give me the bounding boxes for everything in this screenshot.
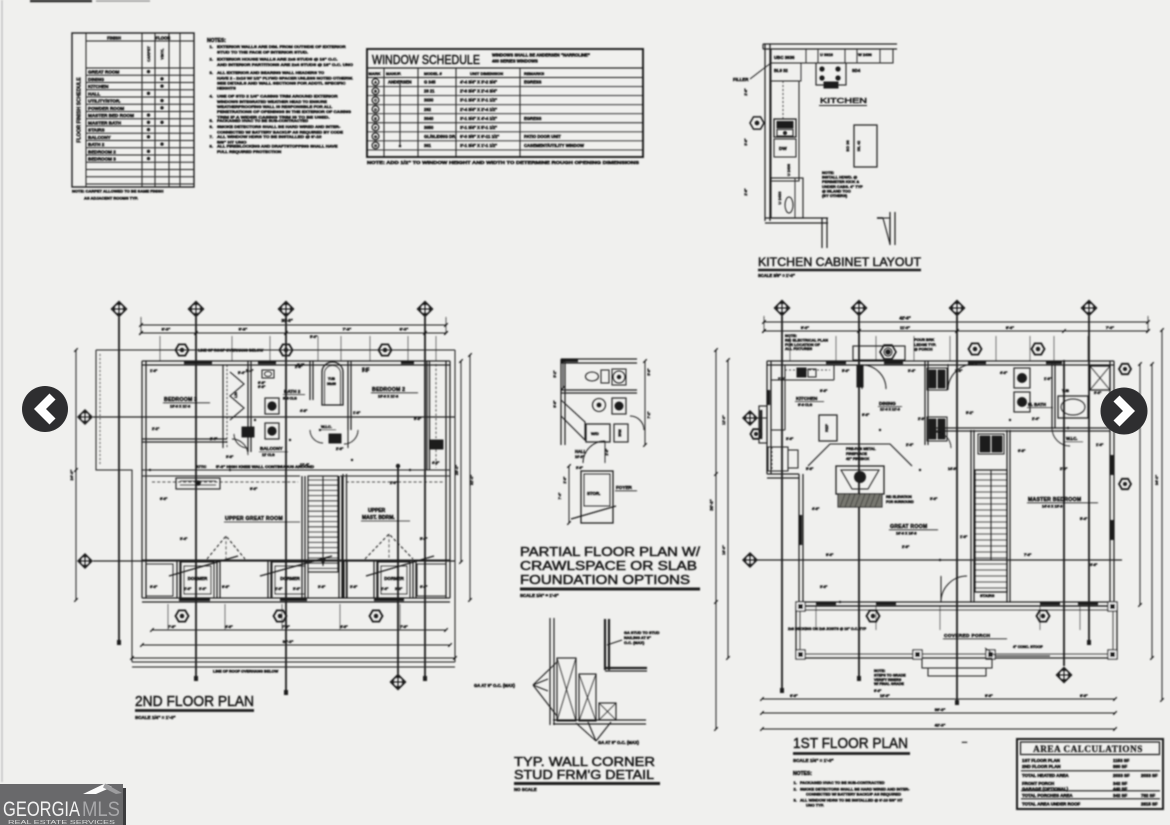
svg-text:8'-0": 8'-0" (162, 327, 171, 332)
svg-text:4'-8": 4'-8" (300, 409, 308, 413)
svg-text:3'-6": 3'-6" (350, 585, 358, 589)
svg-text:4'-0": 4'-0" (225, 625, 233, 629)
svg-text:9'-0 CLG: 9'-0 CLG (798, 403, 813, 407)
svg-text:6'-8": 6'-8" (258, 385, 266, 389)
svg-text:NOTES:: NOTES: (207, 38, 226, 44)
svg-text:2'-0": 2'-0" (381, 587, 389, 591)
svg-text:2'-0": 2'-0" (275, 587, 283, 591)
svg-text:TOTAL AREA UNDER ROOF: TOTAL AREA UNDER ROOF (1022, 802, 1081, 807)
svg-text:UPPER: UPPER (368, 508, 386, 514)
svg-text:5'-2": 5'-2" (553, 370, 557, 378)
svg-text:M. BATH: M. BATH (1028, 402, 1046, 407)
svg-text:U 3618: U 3618 (820, 52, 834, 57)
svg-text:GA AT 8" O.C. (MAX): GA AT 8" O.C. (MAX) (598, 740, 640, 745)
svg-text:342 SF: 342 SF (1113, 781, 1127, 786)
svg-text:3.: 3. (794, 798, 797, 803)
svg-text:7'-8": 7'-8" (343, 327, 352, 332)
svg-text:2ND FLOOR PLAN: 2ND FLOOR PLAN (1022, 764, 1061, 769)
svg-text:1'-8": 1'-8" (960, 535, 968, 539)
svg-text:2x6 DECKING ON 2x8 JOISTS @ 16: 2x6 DECKING ON 2x8 JOISTS @ 16" O.C. TYP (788, 627, 867, 631)
svg-text:1'-6": 1'-6" (150, 369, 158, 373)
svg-text:9'-8": 9'-8" (239, 327, 248, 332)
svg-text:1ST FLOOR PLAN: 1ST FLOOR PLAN (1022, 758, 1060, 763)
svg-text:TUB: TUB (1062, 389, 1070, 393)
svg-text:COVERED PORCH: COVERED PORCH (944, 633, 991, 639)
svg-text:NOTE: ADD 1/2" TO WINDOW HEIGH: NOTE: ADD 1/2" TO WINDOW HEIGHT AND WIDT… (367, 160, 639, 165)
svg-text:11'-0 X 12'-0: 11'-0 X 12'-0 (880, 408, 900, 412)
svg-text:W/D: W/D (591, 431, 599, 436)
svg-text:MASTER BEDROOM: MASTER BEDROOM (1028, 497, 1081, 503)
svg-text:2'-6 3/4" X 2'-4 3/4": 2'-6 3/4" X 2'-4 3/4" (460, 89, 497, 94)
svg-text:STEPS TO GRADE: STEPS TO GRADE (874, 673, 906, 677)
svg-text:30'-0": 30'-0" (283, 639, 294, 644)
svg-text:7'-2": 7'-2" (647, 411, 651, 419)
svg-text:1ST FLOOR PLAN: 1ST FLOOR PLAN (793, 736, 908, 752)
svg-text:9'-0": 9'-0" (826, 553, 834, 557)
svg-text:30'-0": 30'-0" (281, 318, 292, 323)
svg-text:42'-0": 42'-0" (935, 723, 946, 728)
svg-text:782 SF: 782 SF (1141, 793, 1155, 798)
svg-text:42'-0": 42'-0" (899, 316, 910, 321)
svg-text:FLOOR FINISH SCHEDULE: FLOOR FINISH SCHEDULE (77, 77, 83, 143)
svg-text:CASEMENT/UTILITY WINDOW: CASEMENT/UTILITY WINDOW (524, 143, 584, 148)
svg-text:1'-8": 1'-8" (353, 411, 361, 415)
svg-text:6.: 6. (210, 124, 213, 129)
svg-text:FLOOR: FLOOR (156, 36, 171, 41)
svg-text:FOYER: FOYER (616, 485, 633, 490)
svg-text:U 2430: U 2430 (777, 191, 782, 205)
svg-text:6'-0": 6'-0" (400, 327, 409, 332)
svg-text:3'-0": 3'-0" (293, 587, 301, 591)
svg-text:AND INTERIOR PARTITIONS ARE 2x: AND INTERIOR PARTITIONS ARE 2x4 STUDS @ … (217, 62, 353, 67)
svg-text:6'-0": 6'-0" (862, 413, 870, 417)
svg-text:EGRESS: EGRESS (524, 116, 542, 121)
svg-text:6'-6": 6'-6" (553, 400, 557, 408)
svg-text:H: H (374, 144, 377, 148)
svg-text:7'-0": 7'-0" (168, 625, 176, 629)
svg-text:FIREPLACE: FIREPLACE (846, 452, 867, 456)
svg-text:NOTE:: NOTE: (785, 334, 797, 338)
svg-text:1.: 1. (210, 44, 213, 49)
svg-text:MARK: MARK (369, 71, 381, 76)
svg-text:AREA CALCULATIONS: AREA CALCULATIONS (1033, 744, 1143, 754)
svg-text:301: 301 (424, 143, 432, 148)
svg-text:SCALE 3/8" = 1'-0": SCALE 3/8" = 1'-0" (758, 273, 795, 278)
svg-text:PACKAGED HVAC TO BE SUB-CONTRA: PACKAGED HVAC TO BE SUB-CONTRACTED (217, 118, 308, 123)
svg-text:12'-4": 12'-4" (300, 463, 310, 467)
svg-text:16'-0": 16'-0" (722, 545, 726, 555)
svg-text:3'-1 3/4" X 4'-4 1/2": 3'-1 3/4" X 4'-4 1/2" (460, 116, 497, 121)
svg-text:REMARKS: REMARKS (524, 71, 545, 76)
svg-text:38'-0": 38'-0" (935, 707, 946, 712)
svg-text:2'-8": 2'-8" (918, 417, 926, 421)
svg-text:BL9 32: BL9 32 (774, 68, 788, 73)
svg-text:1153 SF: 1153 SF (1113, 758, 1130, 763)
svg-text:2033 SF: 2033 SF (1113, 773, 1130, 778)
svg-text:NO SCALE: NO SCALE (514, 787, 537, 792)
svg-text:3'-0": 3'-0" (1094, 391, 1102, 395)
svg-text:282: 282 (424, 107, 432, 112)
svg-text:2815 SF: 2815 SF (1141, 802, 1158, 807)
svg-text:PRE-FAB METAL: PRE-FAB METAL (846, 447, 876, 451)
svg-text:LEDGE TYP.: LEDGE TYP. (914, 343, 936, 347)
svg-text:2'-0": 2'-0" (390, 481, 398, 485)
svg-text:4'-4 3/4" X 3'-2 3/4": 4'-4 3/4" X 3'-2 3/4" (460, 80, 497, 85)
svg-text:6'-0": 6'-0" (160, 497, 168, 501)
svg-text:6'-0": 6'-0" (150, 585, 158, 589)
svg-text:DINING: DINING (879, 401, 896, 407)
svg-text:3'-0": 3'-0" (199, 587, 207, 591)
svg-text:3030: 3030 (424, 98, 434, 103)
svg-text:C: C (374, 99, 377, 103)
svg-text:DORMER: DORMER (188, 576, 208, 581)
svg-text:4'-0": 4'-0" (812, 507, 820, 511)
svg-text:BALCONY: BALCONY (88, 135, 111, 140)
svg-text:TOTAL PORCHES AREA: TOTAL PORCHES AREA (1022, 793, 1073, 798)
svg-text:MASTER BED ROOM: MASTER BED ROOM (88, 113, 134, 118)
svg-text:BEDROOM 2: BEDROOM 2 (372, 387, 405, 393)
svg-text:GREAT ROOM: GREAT ROOM (88, 70, 119, 75)
svg-text:UBC 3636: UBC 3636 (774, 55, 795, 60)
svg-text:4'-0": 4'-0" (432, 461, 440, 465)
svg-text:BATH 2: BATH 2 (88, 142, 105, 147)
svg-text:BATH 2: BATH 2 (284, 389, 301, 394)
svg-text:2'-4 3/4" X 2'-4 1/2": 2'-4 3/4" X 2'-4 1/2" (460, 107, 497, 112)
svg-text:HEIGHTS: HEIGHTS (217, 86, 236, 91)
svg-text:5'-2": 5'-2" (966, 411, 974, 415)
svg-text:2'-2": 2'-2" (152, 427, 160, 431)
svg-text:VERIFY RISERS: VERIFY RISERS (874, 678, 902, 682)
svg-text:880 SF: 880 SF (1113, 764, 1127, 769)
svg-text:2'-6": 2'-6" (210, 437, 218, 441)
svg-text:RE: ELEVATION: RE: ELEVATION (886, 495, 912, 499)
svg-text:12'-0": 12'-0" (722, 415, 726, 425)
svg-text:11'-0": 11'-0" (900, 326, 910, 330)
svg-text:6'-8": 6'-8" (258, 381, 266, 385)
svg-text:BRM: BRM (618, 429, 622, 437)
svg-text:6'-8": 6'-8" (1018, 449, 1026, 453)
svg-text:STUD FRM'G DETAIL: STUD FRM'G DETAIL (514, 767, 654, 782)
svg-text:3'-4": 3'-4" (908, 369, 916, 373)
svg-text:REF: REF (825, 424, 829, 432)
svg-text:28'-0": 28'-0" (455, 465, 459, 476)
svg-text:KITCHEN CABINET LAYOUT: KITCHEN CABINET LAYOUT (758, 255, 922, 269)
svg-text:LINE OF ROOF OVERHANG BELOW: LINE OF ROOF OVERHANG BELOW (198, 349, 264, 353)
svg-text:KITCHEN: KITCHEN (796, 396, 818, 402)
svg-text:5'-8": 5'-8" (806, 467, 814, 471)
svg-text:2'-6": 2'-6" (1060, 467, 1068, 471)
svg-text:4" CONC. STOOP: 4" CONC. STOOP (1013, 645, 1043, 649)
svg-text:LIN: LIN (234, 392, 238, 398)
svg-text:UPPER GREAT ROOM: UPPER GREAT ROOM (225, 516, 283, 522)
svg-text:7'-0": 7'-0" (1106, 326, 1114, 330)
svg-text:4'-0": 4'-0" (340, 625, 348, 629)
svg-text:36'-0": 36'-0" (709, 499, 714, 510)
svg-text:5'-0": 5'-0" (310, 335, 318, 339)
svg-text:9'-0": 9'-0" (222, 585, 230, 589)
svg-text:2'-8": 2'-8" (297, 363, 305, 367)
svg-text:DORMER: DORMER (280, 576, 300, 581)
svg-text:SCALE 1/4" = 1'-0": SCALE 1/4" = 1'-0" (135, 715, 176, 720)
svg-text:3'-6": 3'-6" (1090, 563, 1098, 567)
svg-text:MANUF.: MANUF. (386, 71, 401, 76)
svg-text:3'-8": 3'-8" (226, 455, 234, 459)
svg-text:ALL FIXTURES: ALL FIXTURES (785, 347, 813, 351)
svg-text:BALCONY: BALCONY (260, 446, 283, 451)
svg-text:O.C. (MAX): O.C. (MAX) (624, 640, 645, 645)
svg-text:STAIRS: STAIRS (88, 128, 105, 133)
svg-text:2.: 2. (794, 787, 797, 792)
svg-text:8'-6": 8'-6" (1006, 326, 1014, 330)
svg-text:GA AT 8" O.C. (MAX): GA AT 8" O.C. (MAX) (474, 683, 516, 688)
svg-text:9'-0": 9'-0" (801, 326, 809, 330)
svg-text:F: F (374, 126, 377, 130)
svg-text:28 21: 28 21 (424, 89, 435, 94)
svg-text:VINYL: VINYL (161, 48, 165, 60)
svg-text:DORMER: DORMER (384, 576, 404, 581)
svg-text:DW: DW (779, 146, 787, 151)
svg-text:2.: 2. (210, 57, 213, 62)
svg-text:NOTES:: NOTES: (793, 771, 812, 777)
svg-text:WINDOWS SHALL BE ANDERSEN “NAR: WINDOWS SHALL BE ANDERSEN “NARROLINE” (492, 53, 590, 58)
svg-text:MAST. BDRM.: MAST. BDRM. (362, 515, 395, 521)
svg-text:8.: 8. (210, 144, 213, 149)
svg-text:POWDER ROOM: POWDER ROOM (88, 106, 124, 111)
svg-text:PACKAGED HVAC TO BE SUB-CONTRA: PACKAGED HVAC TO BE SUB-CONTRACTED (800, 780, 885, 785)
svg-text:5'-0": 5'-0" (647, 368, 651, 376)
svg-text:3'-0": 3'-0" (820, 585, 828, 589)
svg-text:1'-8": 1'-8" (1044, 377, 1052, 381)
svg-text:W.I.C.: W.I.C. (1066, 436, 1077, 441)
svg-text:GREAT ROOM: GREAT ROOM (890, 524, 927, 530)
svg-text:A: A (374, 81, 377, 85)
svg-text:14'-0 X 13'-0: 14'-0 X 13'-0 (1042, 505, 1063, 509)
svg-text:7'-0": 7'-0" (400, 625, 408, 629)
svg-text:TUB: TUB (328, 377, 336, 381)
svg-text:DINING: DINING (88, 77, 105, 82)
svg-text:UNIT DIMENSION: UNIT DIMENSION (470, 71, 503, 76)
svg-text:AS ADJACENT ROOMS TYP.: AS ADJACENT ROOMS TYP. (84, 196, 138, 201)
svg-text:2'-6": 2'-6" (744, 88, 748, 96)
svg-text:2'-0": 2'-0" (906, 443, 914, 447)
svg-text:5'-0": 5'-0" (842, 369, 850, 373)
svg-text:MASTER BATH: MASTER BATH (88, 120, 122, 125)
svg-text:9'-0": 9'-0" (985, 694, 993, 698)
svg-text:UNO TYP.: UNO TYP. (806, 802, 824, 807)
svg-text:ANDERSEN: ANDERSEN (388, 80, 412, 85)
svg-text:STOR.: STOR. (587, 491, 600, 496)
svg-text:3'-0": 3'-0" (395, 587, 403, 591)
svg-text:FOR LOCATION OF: FOR LOCATION OF (785, 343, 821, 347)
svg-text:3'-1 3/4" X 5'-1 1/2": 3'-1 3/4" X 5'-1 1/2" (460, 125, 497, 130)
svg-text:14'-6": 14'-6" (948, 467, 958, 471)
svg-text:13'-0 X 11'-6: 13'-0 X 11'-6 (378, 395, 398, 399)
svg-text:MLS: MLS (82, 798, 120, 821)
svg-text:5.: 5. (210, 118, 213, 123)
svg-text:342 SF: 342 SF (1113, 793, 1127, 798)
svg-text:10'-0": 10'-0" (880, 694, 890, 698)
svg-text:ISL 42: ISL 42 (857, 141, 861, 152)
svg-text:UTILITY/STOR.: UTILITY/STOR. (88, 99, 121, 104)
svg-text:EGRESS: EGRESS (524, 80, 542, 85)
svg-text:W/ FINAL GRADE: W/ FINAL GRADE (874, 682, 904, 686)
svg-text:4.: 4. (210, 94, 213, 99)
svg-text:3'-1 3/4" X 3'-1 1/2": 3'-1 3/4" X 3'-1 1/2" (460, 98, 497, 103)
svg-text:HALL: HALL (88, 91, 100, 96)
svg-text:13'-0 X 11'-6: 13'-0 X 11'-6 (170, 405, 190, 409)
svg-text:BEDROOM 3: BEDROOM 3 (164, 397, 197, 403)
svg-text:24'-0": 24'-0" (69, 469, 74, 480)
svg-text:D: D (374, 108, 377, 112)
svg-text:2'-8": 2'-8" (605, 448, 609, 455)
svg-text:6'-0": 6'-0" (420, 585, 428, 589)
svg-text:5'-4": 5'-4" (246, 369, 254, 373)
svg-text:KITCHEN: KITCHEN (88, 84, 109, 89)
svg-text:2'-8": 2'-8" (336, 447, 344, 451)
svg-text:WINDOW SCHEDULE: WINDOW SCHEDULE (372, 53, 480, 67)
svg-text:POUR BRK: POUR BRK (914, 338, 935, 342)
svg-text:5'-8": 5'-8" (420, 537, 428, 541)
svg-text:6'-0": 6'-0" (874, 689, 882, 693)
svg-text:4'-0": 4'-0" (1000, 371, 1008, 375)
svg-text:W 2436: W 2436 (858, 52, 873, 57)
svg-text:3'-0": 3'-0" (362, 367, 370, 371)
svg-text:LINE OF ROOF OVERHANG BELOW: LINE OF ROOF OVERHANG BELOW (213, 670, 279, 674)
svg-text:B: B (374, 90, 377, 94)
svg-text:CARPET: CARPET (147, 46, 151, 62)
svg-text:1'-6": 1'-6" (1096, 443, 1104, 447)
svg-text:BEDROOM 2: BEDROOM 2 (88, 149, 116, 154)
svg-text:MODEL #: MODEL # (424, 71, 442, 76)
svg-text:34'-0": 34'-0" (1155, 475, 1159, 486)
svg-text:FOUNDATION OPTIONS: FOUNDATION OPTIONS (520, 572, 690, 587)
svg-text:KITCHEN: KITCHEN (820, 96, 867, 105)
svg-text:RE: ELECTRICAL PLAN: RE: ELECTRICAL PLAN (785, 338, 828, 342)
svg-text:2'-8": 2'-8" (955, 369, 963, 373)
svg-text:42" FIREBOX: 42" FIREBOX (846, 457, 870, 461)
svg-text:FRONT PORCH: FRONT PORCH (1022, 781, 1054, 786)
svg-text:7'-0": 7'-0" (1024, 553, 1032, 557)
svg-text:3'-4": 3'-4" (180, 537, 188, 541)
svg-text:G 345: G 345 (424, 80, 436, 85)
svg-text:TOTAL HEATED AREA: TOTAL HEATED AREA (1022, 773, 1069, 778)
svg-text:2033 SF: 2033 SF (1141, 773, 1158, 778)
svg-text:NOTE:: NOTE: (874, 669, 885, 673)
svg-text:3'-6": 3'-6" (786, 437, 794, 441)
svg-text:8'-0 CLG: 8'-0 CLG (283, 396, 297, 400)
svg-text:8'-6": 8'-6" (820, 389, 828, 393)
svg-text:3'-0": 3'-0" (930, 497, 938, 501)
svg-text:8'-0": 8'-0" (1080, 694, 1088, 698)
svg-text:7.: 7. (210, 134, 213, 139)
svg-text:2'-4": 2'-4" (1032, 417, 1040, 421)
svg-text:2'-0": 2'-0" (184, 587, 192, 591)
svg-text:BD 36: BD 36 (845, 140, 850, 152)
svg-text:2'-8": 2'-8" (563, 476, 567, 483)
svg-text:6'-0 3/8" X 6'-11 1/2": 6'-0 3/8" X 6'-11 1/2" (460, 134, 499, 139)
svg-text:BEDROOM 3: BEDROOM 3 (88, 157, 116, 162)
svg-text:GEORGIA: GEORGIA (3, 798, 80, 821)
svg-text:(BY OTHERS): (BY OTHERS) (822, 193, 848, 198)
svg-text:SCALE 1/4" = 1'-0": SCALE 1/4" = 1'-0" (520, 593, 559, 598)
svg-text:SCALE 1/4" = 1'-0": SCALE 1/4" = 1'-0" (793, 758, 834, 763)
svg-text:GL/SLIDING DR.: GL/SLIDING DR. (424, 134, 456, 139)
svg-text:STAIRS: STAIRS (980, 593, 995, 598)
svg-text:FILLER: FILLER (733, 77, 749, 82)
svg-text:7'-0": 7'-0" (282, 625, 290, 629)
svg-text:3'-0": 3'-0" (576, 466, 583, 470)
svg-text:2'-6": 2'-6" (778, 377, 786, 381)
svg-text:G: G (374, 135, 377, 139)
svg-text:PARTIAL FLOOR PLAN W/: PARTIAL FLOOR PLAN W/ (520, 544, 701, 559)
svg-text:9'-0": 9'-0" (250, 487, 258, 491)
svg-text:3'-1 3/4" X 1'-1 1/2": 3'-1 3/4" X 1'-1 1/2" (460, 143, 497, 148)
svg-text:CRAWLSPACE OR SLAB: CRAWLSPACE OR SLAB (520, 558, 697, 573)
svg-text:5'-4": 5'-4" (238, 371, 246, 375)
svg-text:1.: 1. (794, 780, 797, 785)
svg-text:STUD TO THE FACE OF INTERIOR S: STUD TO THE FACE OF INTERIOR STUD. (217, 49, 308, 54)
svg-text:12' CLG: 12' CLG (262, 453, 275, 457)
svg-text:NOTE: CARPET ALLOWED TO BE SAM: NOTE: CARPET ALLOWED TO BE SAME FINISH (72, 189, 163, 194)
svg-text:FULL REQUIRED PROTECTION: FULL REQUIRED PROTECTION (217, 149, 282, 154)
svg-text:5'-0": 5'-0" (414, 417, 422, 421)
svg-text:PATIO DOOR UNIT: PATIO DOOR UNIT (524, 134, 561, 139)
svg-text:REAL ESTATE SERVICES: REAL ESTATE SERVICES (8, 820, 116, 825)
svg-text:400 SERIES WINDOWS: 400 SERIES WINDOWS (492, 59, 538, 64)
svg-text:2'-6": 2'-6" (744, 188, 748, 196)
svg-text:W.I.C.: W.I.C. (321, 424, 332, 429)
svg-text:FOR SURROUND: FOR SURROUND (886, 500, 914, 504)
svg-text:36x60: 36x60 (327, 382, 336, 386)
svg-text:3040: 3040 (424, 116, 434, 121)
svg-text:—: — (962, 740, 967, 746)
svg-text:2ND FLOOR PLAN: 2ND FLOOR PLAN (135, 694, 254, 710)
svg-text:3050: 3050 (424, 125, 434, 130)
svg-text:ATTIC: ATTIC (196, 465, 207, 469)
svg-text:3.: 3. (210, 70, 213, 75)
svg-text:@ PORCH: @ PORCH (914, 348, 933, 352)
svg-text:SD4: SD4 (852, 68, 861, 73)
svg-text:16'-0 X 18'-0: 16'-0 X 18'-0 (896, 532, 917, 536)
svg-text:CONNECTED W/ BATTERY BACKUP AS: CONNECTED W/ BATTERY BACKUP AS REQUIRED (806, 791, 901, 796)
svg-text:6'-0": 6'-0" (790, 694, 798, 698)
svg-text:U 2436: U 2436 (787, 164, 791, 176)
svg-text:FINISH: FINISH (107, 36, 121, 41)
svg-text:2'-8": 2'-8" (902, 545, 910, 549)
svg-text:3'-0": 3'-0" (744, 138, 748, 146)
svg-text:E: E (374, 117, 377, 121)
svg-text:32'-0": 32'-0" (470, 475, 474, 486)
svg-text:5'-4": 5'-4" (1080, 517, 1088, 521)
svg-text:3'-6": 3'-6" (318, 585, 326, 589)
svg-text:SEE DETAILS AND WALL SECTIONS: SEE DETAILS AND WALL SECTIONS FOR ADDTL … (217, 81, 346, 86)
svg-text:7'-4": 7'-4" (558, 492, 562, 499)
